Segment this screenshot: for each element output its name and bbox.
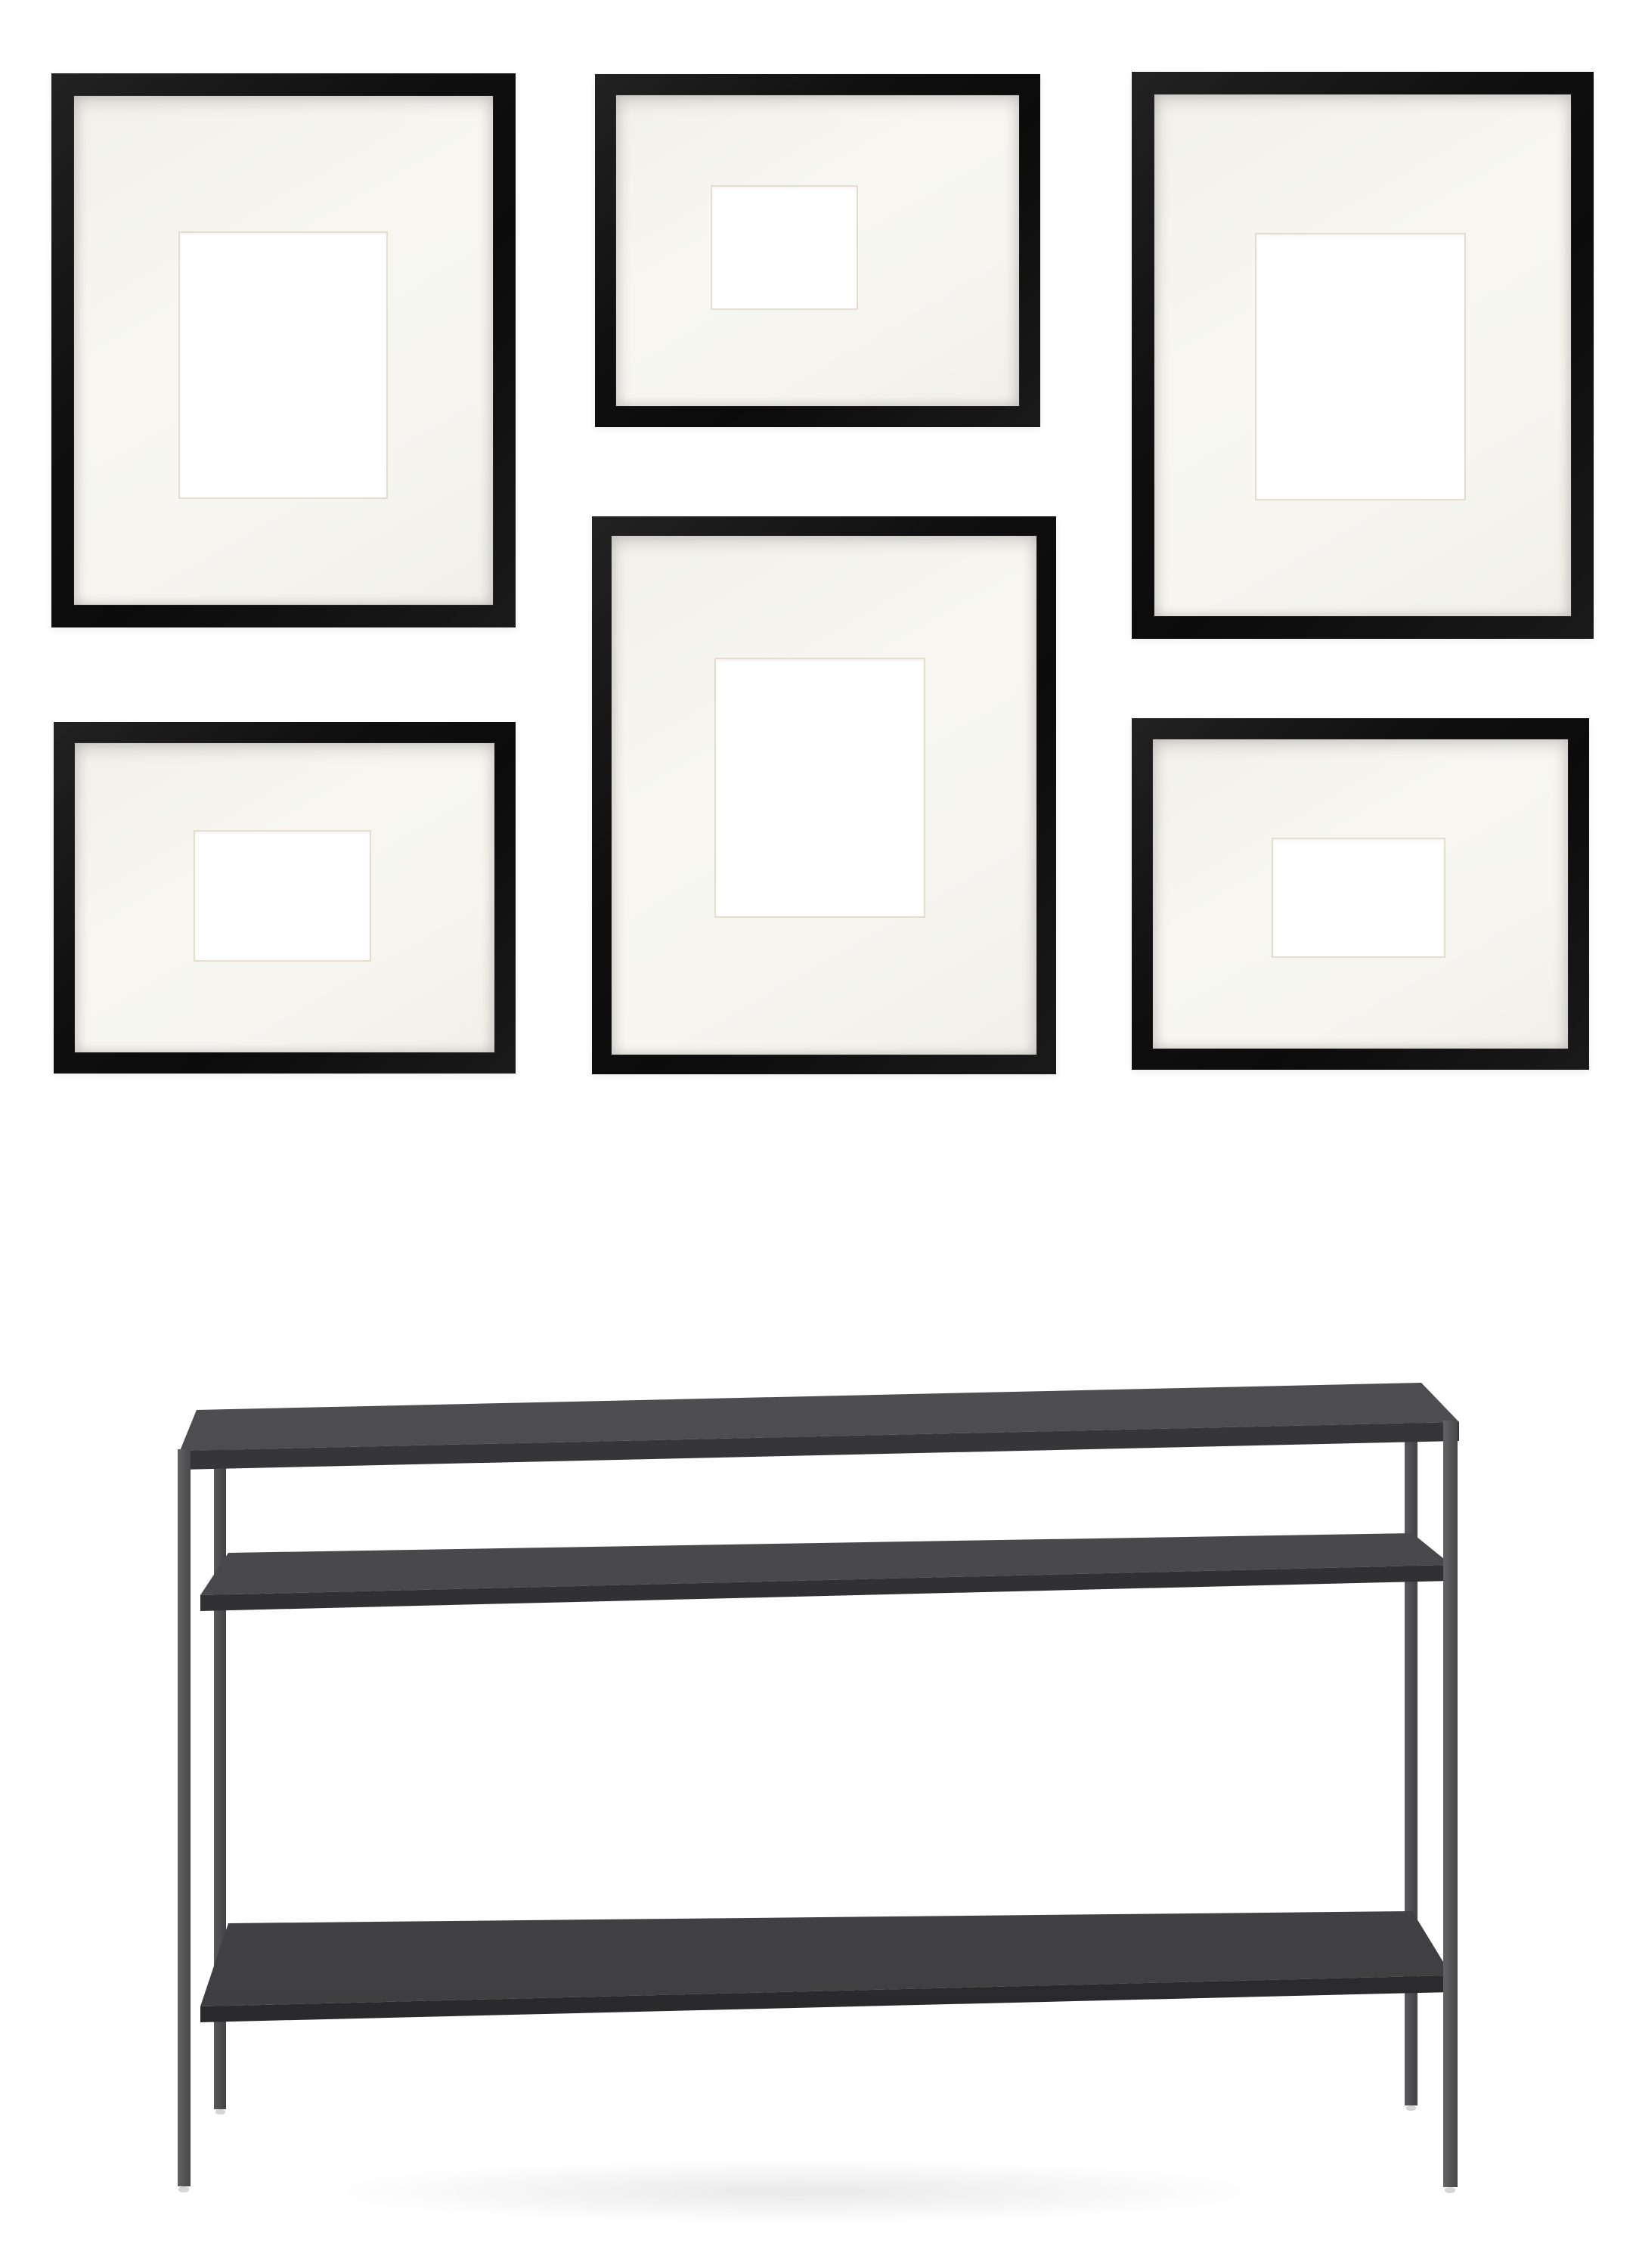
table-leg-front-left [178, 1449, 191, 2186]
gallery-frame-5-portrait [592, 516, 1056, 1074]
mat-opening [716, 659, 924, 916]
middle-shelf-edge [174, 1372, 1463, 2242]
gallery-frame-1-portrait [51, 73, 516, 627]
mat-opening [1256, 234, 1464, 499]
gallery-frame-3-portrait [1132, 72, 1594, 639]
gallery-frame-2-landscape [595, 74, 1040, 427]
gallery-frame-4-landscape [54, 722, 516, 1074]
gallery-frame-6-landscape [1132, 718, 1589, 1070]
middle-shelf [174, 1372, 1463, 2242]
product-photo [0, 0, 1639, 2268]
mat-opening [1273, 839, 1444, 956]
bottom-shelf [174, 1372, 1463, 2242]
floor-shadow [151, 2151, 1489, 2242]
foot-glide-back-left [215, 2109, 225, 2115]
foot-glide-front-right [1445, 2187, 1455, 2193]
console-table [174, 1372, 1463, 2242]
foot-glide-front-left [178, 2186, 189, 2192]
mat-opening [180, 233, 386, 497]
mat-opening [195, 832, 370, 960]
bottom-shelf-edge [174, 1372, 1463, 2242]
table-leg-front-right [1443, 1421, 1458, 2187]
foot-glide-back-right [1406, 2105, 1416, 2111]
mat-opening [712, 187, 857, 308]
table-leg-back-right [1405, 1416, 1417, 2105]
tabletop-edge [174, 1372, 1463, 2242]
tabletop [174, 1372, 1463, 2242]
